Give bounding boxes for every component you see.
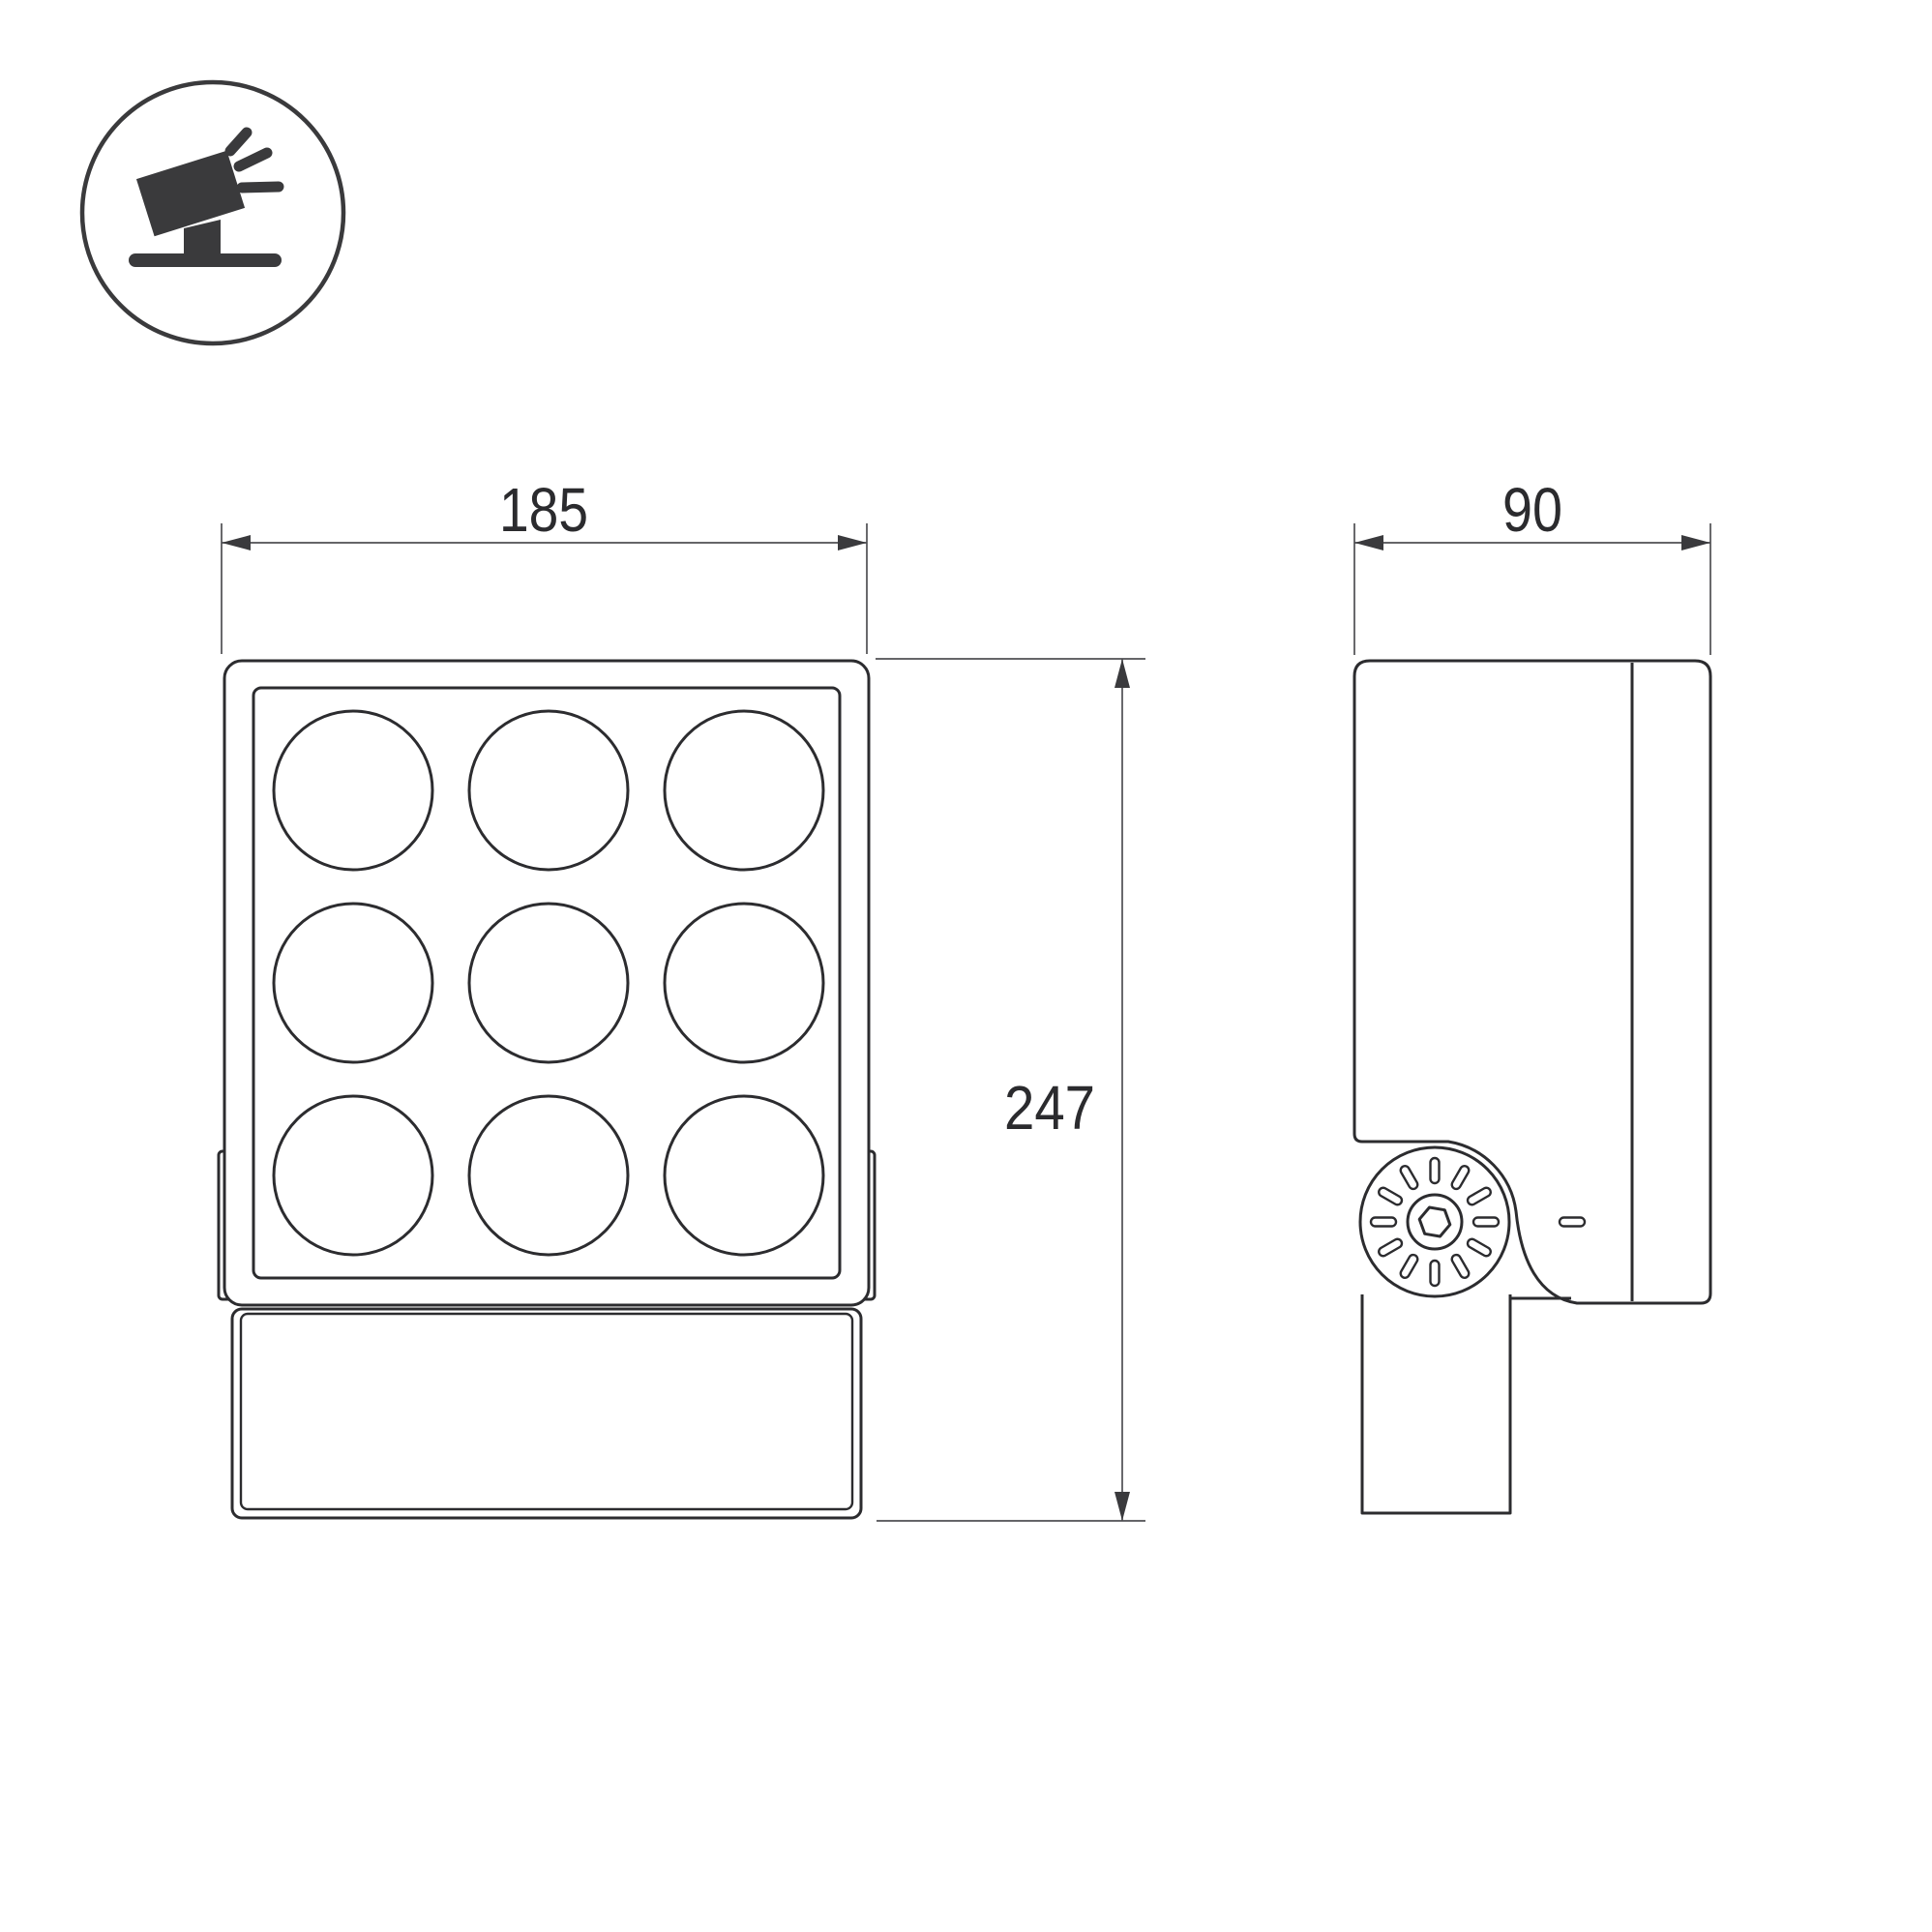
dimension-value: 247 xyxy=(1004,1073,1095,1143)
dimension-side-depth: 90 xyxy=(1354,475,1710,655)
icon-lamp-base xyxy=(129,253,282,267)
arrowhead-right-icon xyxy=(838,535,867,550)
floodlight-icon xyxy=(82,82,343,343)
side-pivot-knob xyxy=(1360,1147,1509,1296)
arrowhead-left-icon xyxy=(1354,535,1383,550)
arrowhead-left-icon xyxy=(222,535,251,550)
dimension-front-width: 185 xyxy=(222,475,867,654)
front-view xyxy=(219,661,875,1518)
dimension-value: 185 xyxy=(499,475,588,545)
arrowhead-down-icon xyxy=(1115,1492,1130,1521)
side-view xyxy=(1354,661,1710,1513)
icon-light-ray-top xyxy=(230,133,247,151)
dimension-value: 90 xyxy=(1502,475,1562,545)
dimension-drawing: 185 90 247 xyxy=(0,0,1932,1932)
front-head-outline xyxy=(224,661,869,1305)
icon-light-ray-bottom xyxy=(242,187,279,188)
drawing-page: 185 90 247 xyxy=(0,0,1932,1932)
front-driver-box xyxy=(232,1309,861,1518)
arrowhead-right-icon xyxy=(1681,535,1710,550)
dimension-front-height: 247 xyxy=(876,659,1145,1521)
icon-light-ray-middle xyxy=(239,153,267,166)
arrowhead-up-icon xyxy=(1115,659,1130,688)
knob-outer-circle xyxy=(1360,1147,1509,1296)
icon-lamp-head xyxy=(136,151,245,237)
